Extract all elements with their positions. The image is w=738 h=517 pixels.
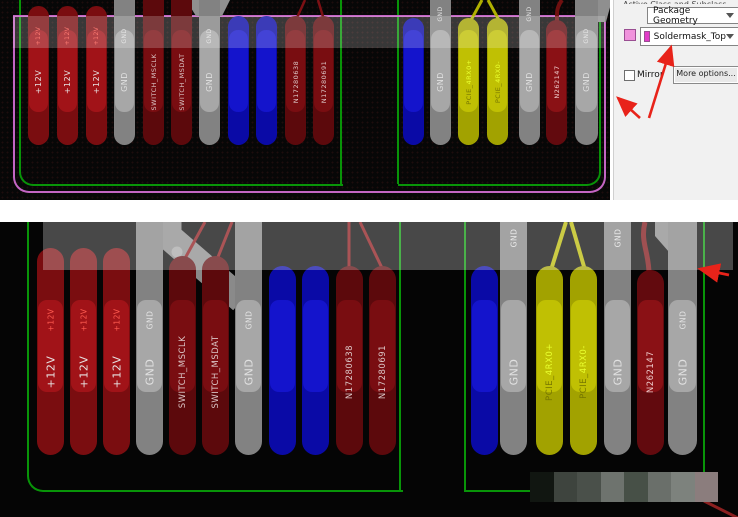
net-label: GND — [121, 72, 129, 92]
net-label-small: GND — [584, 28, 590, 43]
pad-unlabeled[interactable] — [471, 266, 498, 455]
pad-PCIE_4RX0+[interactable]: PCIE_4RX0+ — [458, 18, 479, 145]
net-label: +12V — [45, 356, 56, 389]
net-label: GND — [508, 359, 519, 386]
pad-GND[interactable]: GNDGND — [199, 0, 220, 145]
pad-highlight-band — [472, 300, 497, 392]
mirror-checkbox-label: Mirror — [637, 70, 664, 80]
pad-+12V[interactable]: +12V+12V — [37, 248, 64, 455]
chevron-down-icon — [726, 13, 734, 18]
pad-GND[interactable]: GNDGND — [604, 222, 631, 455]
net-label-small: GND — [510, 229, 518, 248]
net-label: GND — [243, 359, 254, 386]
pad-container-top: +12V+12V+12V+12V+12V+12VGNDGNDSWITCH_MSC… — [0, 0, 610, 200]
panel-header-clipped: Active Class and Subclass — [623, 0, 738, 4]
pad-PCIE_4RX0-[interactable]: PCIE_4RX0- — [570, 266, 597, 455]
pad-SWITCH_MSCLK[interactable]: SWITCH_MSCLK — [143, 0, 164, 145]
net-label: +12V — [35, 70, 43, 94]
pad-+12V[interactable]: +12V+12V — [57, 6, 78, 145]
pad-unlabeled[interactable] — [302, 266, 329, 455]
net-label-small: +12V — [80, 309, 88, 332]
net-label-small: GND — [614, 229, 622, 248]
pcb-editor-screenshot: +12V+12V+12V+12V+12V+12VGNDGNDSWITCH_MSC… — [0, 0, 738, 517]
subclass-color-swatch — [644, 31, 650, 42]
pcb-canvas-bottom-view[interactable]: +12V+12V+12V+12V+12V+12VGNDGNDSWITCH_MSC… — [0, 222, 738, 517]
net-label-small: GND — [146, 311, 154, 330]
pad-GND[interactable]: GNDGND — [136, 222, 163, 455]
pad-+12V[interactable]: +12V+12V — [86, 6, 107, 145]
pad-GND[interactable]: GNDGND — [668, 222, 697, 455]
mosaic-tile — [695, 472, 719, 502]
net-label-small: +12V — [113, 309, 121, 332]
mirror-checkbox[interactable] — [624, 70, 635, 81]
pixelated-watermark — [530, 472, 718, 502]
pad-GND[interactable]: GNDGND — [500, 222, 527, 455]
pad-N17280691[interactable]: N17280691 — [369, 266, 396, 455]
pad-GND[interactable]: GNDGND — [519, 0, 540, 145]
net-label: N17280691 — [378, 345, 387, 399]
pad-unlabeled[interactable] — [256, 16, 277, 145]
net-label-small: GND — [122, 28, 128, 43]
pad-N262147[interactable]: N262147 — [637, 270, 664, 455]
net-label: +12V — [93, 70, 101, 94]
pad-SWITCH_MSDAT[interactable]: SWITCH_MSDAT — [171, 0, 192, 145]
net-label: N17280638 — [292, 61, 299, 103]
net-label: SWITCH_MSDAT — [211, 335, 220, 408]
pad-highlight-band — [257, 30, 276, 112]
chevron-down-icon — [726, 34, 734, 39]
pad-highlight-band — [229, 30, 248, 112]
pad-GND[interactable]: GNDGND — [114, 0, 135, 145]
pad-highlight-band — [270, 300, 295, 392]
net-label: SWITCH_MSCLK — [178, 336, 187, 409]
layer-color-swatch[interactable] — [624, 29, 636, 41]
net-label-small: GND — [438, 6, 444, 21]
mosaic-tile — [601, 472, 625, 502]
net-label: +12V — [111, 356, 122, 389]
mosaic-tile — [624, 472, 648, 502]
net-label-small: +12V — [36, 27, 42, 46]
net-label: +12V — [64, 70, 72, 94]
more-options-button[interactable]: More options... — [673, 66, 738, 84]
pad-N262147[interactable]: N262147 — [546, 20, 567, 145]
pad-SWITCH_MSDAT[interactable]: SWITCH_MSDAT — [202, 256, 229, 455]
net-label: GND — [206, 72, 214, 92]
pad-PCIE_4RX0-[interactable]: PCIE_4RX0- — [487, 18, 508, 145]
net-label: N262147 — [646, 351, 655, 393]
net-label: GND — [526, 72, 534, 92]
net-label: GND — [583, 72, 591, 92]
pad-GND[interactable]: GNDGND — [235, 222, 262, 455]
pad-GND[interactable]: GNDGND — [575, 0, 598, 145]
net-label: SWITCH_MSCLK — [150, 54, 157, 111]
pad-highlight-band — [431, 30, 450, 112]
mosaic-tile — [577, 472, 601, 502]
net-label: N262147 — [553, 65, 560, 98]
net-label-small: +12V — [65, 27, 71, 46]
subclass-dropdown[interactable]: Soldermask_Top — [640, 27, 738, 46]
net-label-small: +12V — [47, 309, 55, 332]
net-label-small: +12V — [94, 27, 100, 46]
pad-N17280638[interactable]: N17280638 — [285, 16, 306, 145]
pad-+12V[interactable]: +12V+12V — [70, 248, 97, 455]
net-label: PCIE_4RX0- — [579, 345, 588, 399]
pad-highlight-band — [303, 300, 328, 392]
net-label: +12V — [78, 356, 89, 389]
pad-highlight-band — [404, 30, 423, 112]
class-dropdown[interactable]: Package Geometry — [647, 7, 738, 24]
mosaic-tile — [530, 472, 554, 502]
mosaic-tile — [554, 472, 578, 502]
net-label: GND — [144, 359, 155, 386]
mosaic-tile — [671, 472, 695, 502]
net-label-small: GND — [527, 6, 533, 21]
net-label: PCIE_4RX0+ — [545, 343, 554, 401]
pad-SWITCH_MSCLK[interactable]: SWITCH_MSCLK — [169, 256, 196, 455]
pad-+12V[interactable]: +12V+12V — [28, 6, 49, 145]
pad-PCIE_4RX0+[interactable]: PCIE_4RX0+ — [536, 266, 563, 455]
net-label-small: GND — [207, 28, 213, 43]
mosaic-tile — [648, 472, 672, 502]
options-panel: Active Class and Subclass Package Geomet… — [610, 0, 738, 200]
net-label: GND — [612, 359, 623, 386]
net-label: PCIE_4RX0+ — [465, 59, 472, 104]
net-label-small: GND — [679, 311, 687, 330]
pad-GND[interactable]: GNDGND — [430, 0, 451, 145]
pad-unlabeled[interactable] — [403, 18, 424, 145]
net-label: GND — [437, 72, 445, 92]
pad-unlabeled[interactable] — [269, 266, 296, 455]
pcb-canvas-top-view[interactable]: +12V+12V+12V+12V+12V+12VGNDGNDSWITCH_MSC… — [0, 0, 610, 200]
net-label: GND — [677, 359, 688, 386]
view-separator — [0, 200, 738, 222]
net-label: N17280638 — [345, 345, 354, 399]
pad-N17280638[interactable]: N17280638 — [336, 266, 363, 455]
net-label: PCIE_4RX0- — [494, 61, 501, 103]
net-label-small: GND — [245, 311, 253, 330]
subclass-dropdown-value: Soldermask_Top — [654, 32, 726, 42]
pad-highlight-band — [520, 30, 539, 112]
pad-+12V[interactable]: +12V+12V — [103, 248, 130, 455]
class-dropdown-value: Package Geometry — [653, 6, 726, 26]
net-label: N17280691 — [320, 61, 327, 103]
pad-unlabeled[interactable] — [228, 16, 249, 145]
net-label: SWITCH_MSDAT — [178, 53, 185, 110]
pad-N17280691[interactable]: N17280691 — [313, 16, 334, 145]
